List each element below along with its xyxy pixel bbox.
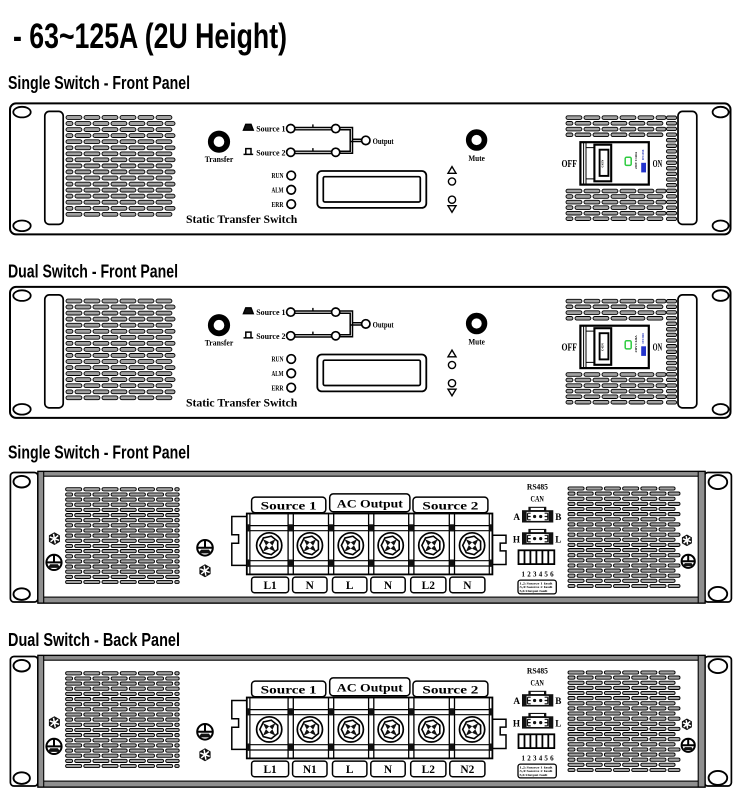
svg-text:5,6:Output fault: 5,6:Output fault [520, 773, 549, 777]
svg-text:B: B [555, 696, 561, 706]
svg-text:ERR: ERR [272, 383, 285, 392]
svg-text:C45N: C45N [601, 159, 605, 167]
svg-text:Source 2: Source 2 [256, 147, 286, 157]
svg-text:L2: L2 [422, 580, 436, 592]
svg-text:Source 2: Source 2 [422, 501, 478, 513]
svg-text:Mute: Mute [468, 336, 485, 346]
svg-text:OFF: OFF [561, 343, 577, 354]
svg-text:Single Switch - Front Panel: Single Switch - Front Panel [8, 442, 190, 462]
svg-text:Transfer: Transfer [205, 154, 234, 164]
svg-text:4: 4 [539, 754, 543, 762]
svg-text:N: N [384, 764, 393, 776]
svg-text:Dual Switch - Back Panel: Dual Switch - Back Panel [8, 630, 180, 650]
svg-text:1: 1 [522, 570, 526, 578]
svg-text:Output: Output [373, 320, 394, 330]
svg-text:5: 5 [544, 754, 548, 762]
svg-text:ALM: ALM [272, 369, 284, 378]
svg-text:A: A [513, 696, 520, 706]
svg-text:2: 2 [527, 570, 531, 578]
svg-text:N1: N1 [303, 764, 317, 776]
svg-text:Source 2: Source 2 [422, 685, 478, 697]
svg-text:Source 1: Source 1 [261, 501, 317, 513]
svg-text:IEC898: IEC898 [641, 333, 645, 344]
svg-text:ERR: ERR [272, 200, 285, 209]
svg-text:1: 1 [522, 754, 526, 762]
svg-text:2: 2 [527, 754, 531, 762]
svg-text:Source 1: Source 1 [256, 307, 285, 317]
svg-text:Transfer: Transfer [205, 337, 234, 347]
svg-text:N: N [463, 580, 472, 592]
svg-text:L1: L1 [263, 580, 277, 592]
svg-text:H: H [513, 718, 520, 728]
svg-text:CAN: CAN [531, 494, 544, 503]
svg-text:5: 5 [544, 570, 548, 578]
svg-text:Single Switch - Front Panel: Single Switch - Front Panel [8, 73, 190, 93]
svg-text:AC Output: AC Output [337, 683, 403, 695]
svg-text:RS485: RS485 [527, 666, 548, 675]
svg-text:C45N: C45N [601, 343, 605, 351]
svg-text:N: N [306, 580, 315, 592]
svg-text:RUN: RUN [272, 171, 284, 180]
svg-text:6: 6 [550, 570, 554, 578]
svg-text:Static Transfer Switch: Static Transfer Switch [186, 396, 298, 410]
svg-text:ON: ON [653, 159, 663, 170]
svg-text:N: N [384, 580, 393, 592]
svg-text:IEC898: IEC898 [641, 149, 645, 160]
svg-text:RS485: RS485 [527, 482, 548, 491]
svg-text:L: L [346, 764, 354, 776]
svg-text:RUN: RUN [272, 355, 284, 364]
svg-text:Static Transfer Switch: Static Transfer Switch [186, 212, 298, 226]
svg-text:A: A [513, 512, 520, 522]
svg-text:3: 3 [533, 570, 537, 578]
svg-text:L: L [555, 718, 561, 728]
svg-text:- 63~125A (2U Height): - 63~125A (2U Height) [13, 16, 287, 56]
svg-text:L: L [346, 580, 354, 592]
svg-text:Mute: Mute [468, 153, 485, 163]
svg-text:4: 4 [539, 570, 543, 578]
svg-text:ALM: ALM [272, 186, 284, 195]
svg-text:3: 3 [533, 754, 537, 762]
svg-text:CAN: CAN [531, 678, 544, 687]
svg-text:OFF: OFF [561, 159, 577, 170]
svg-text:5,6:Output fault: 5,6:Output fault [520, 589, 549, 593]
svg-text:Dual Switch - Front Panel: Dual Switch - Front Panel [8, 262, 178, 282]
svg-text:H: H [513, 534, 520, 544]
svg-text:230V C120A: 230V C120A [634, 151, 638, 169]
svg-text:Source 2: Source 2 [256, 331, 286, 341]
svg-text:AC Output: AC Output [337, 499, 403, 511]
svg-text:ON: ON [653, 343, 663, 354]
svg-text:Source 1: Source 1 [256, 124, 285, 134]
svg-text:Output: Output [373, 136, 394, 146]
svg-text:L1: L1 [263, 764, 277, 776]
svg-text:6: 6 [550, 754, 554, 762]
svg-text:230V C120A: 230V C120A [634, 335, 638, 353]
svg-text:B: B [555, 512, 561, 522]
svg-text:N2: N2 [460, 764, 474, 776]
svg-text:L: L [555, 534, 561, 544]
svg-text:Source 1: Source 1 [261, 685, 317, 697]
svg-text:L2: L2 [422, 764, 436, 776]
